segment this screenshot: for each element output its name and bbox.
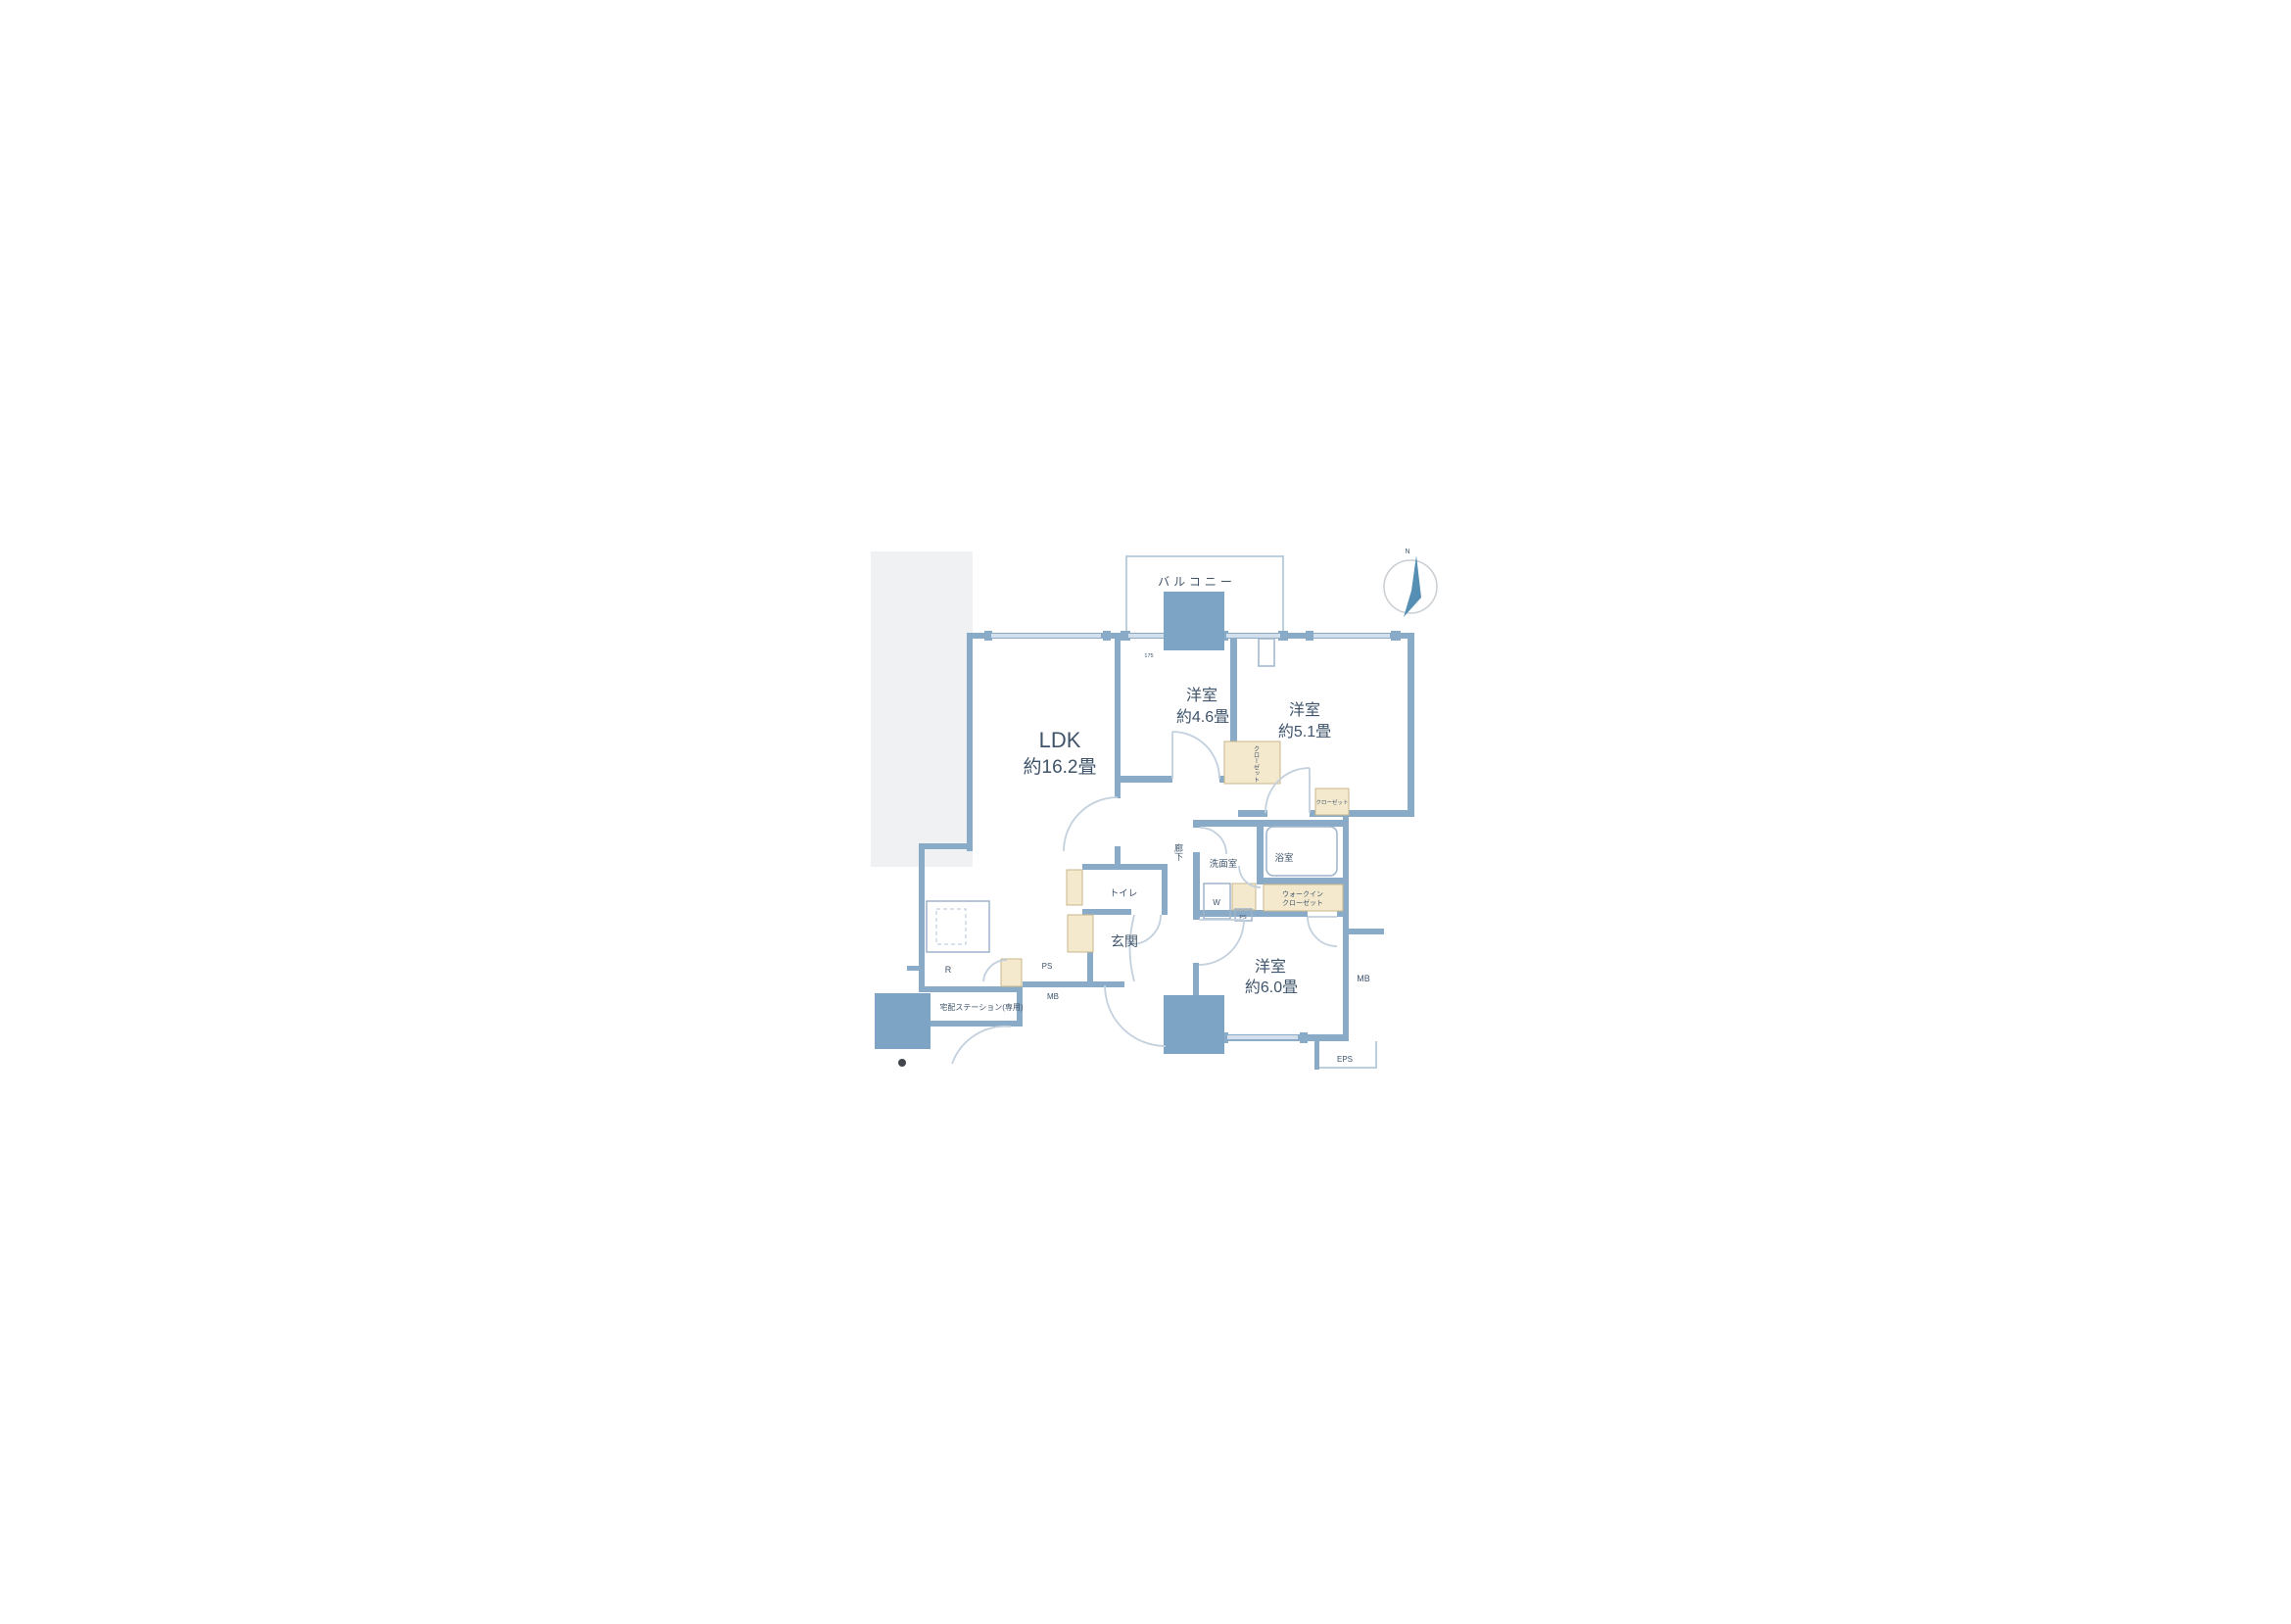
room-size-west2: 約5.1畳	[1278, 723, 1331, 740]
bathtub-outline	[1266, 827, 1337, 876]
room-label-ldk: LDK	[1039, 728, 1081, 752]
linen-cabinet	[1232, 884, 1256, 910]
room-label-west2: 洋室	[1289, 701, 1320, 719]
compass: N	[1384, 549, 1437, 617]
washer-label: W	[1213, 898, 1220, 907]
window-dim-label: 175	[1144, 653, 1153, 659]
compass-needle-icon	[1404, 555, 1421, 617]
ink-speck	[898, 1059, 906, 1067]
meter-box-side-label: MB	[1357, 974, 1370, 983]
eps-label: EPS	[1337, 1055, 1353, 1064]
entrance-door-arc	[1105, 985, 1166, 1046]
room-label-west1: 洋室	[1186, 687, 1217, 704]
shoe-cabinet	[1068, 915, 1093, 952]
room-size-west3: 約6.0畳	[1245, 979, 1298, 996]
refrigerator-label: R	[945, 965, 952, 975]
balcony-label: バルコニー	[1158, 575, 1236, 589]
room60-door-arc	[1199, 920, 1244, 965]
room46-door-arc	[1172, 732, 1219, 779]
room-label-west3: 洋室	[1255, 958, 1286, 976]
washroom-door-arc	[1200, 828, 1226, 854]
scan-shading	[871, 551, 973, 867]
closet46-label: クローゼット	[1253, 745, 1260, 783]
facade-stub	[1259, 639, 1274, 666]
floorplan-svg: N バルコニー LDK 約16.2畳 洋室 約4.6畳 洋室 約5.1畳 洋室 …	[0, 0, 2291, 1619]
room-size-ldk: 約16.2畳	[1024, 756, 1097, 778]
compass-north-label: N	[1405, 549, 1409, 555]
ps-small-label: PS	[1239, 915, 1247, 921]
ldk-door-arc	[1064, 797, 1118, 851]
delivery-door-arc	[952, 1027, 1011, 1064]
wic-label-line1: ウォークイン	[1282, 890, 1323, 898]
washroom-label: 洗面室	[1210, 858, 1238, 870]
wic-label-line2: クローゼット	[1282, 898, 1323, 907]
delivery-station-label: 宅配ステーション(専用)	[939, 1002, 1024, 1012]
room-size-west1: 約4.6畳	[1176, 708, 1229, 726]
kitchen-ps-box	[1001, 959, 1022, 986]
pipe-space-label: PS	[1042, 962, 1053, 971]
meter-box-entrance-label: MB	[1047, 992, 1059, 1001]
closet51-label: クローゼット	[1315, 798, 1348, 806]
hallway-label: 廊下	[1173, 842, 1183, 862]
bathroom-label: 浴室	[1274, 852, 1293, 864]
floorplan-page: N バルコニー LDK 約16.2畳 洋室 約4.6畳 洋室 約5.1畳 洋室 …	[0, 0, 2291, 1619]
toilet-label: トイレ	[1110, 888, 1138, 899]
entrance-label: 玄関	[1111, 933, 1138, 949]
fixtures	[1001, 741, 1349, 986]
toilet-cabinet	[1067, 870, 1082, 905]
wic-door-arc	[1308, 917, 1337, 946]
